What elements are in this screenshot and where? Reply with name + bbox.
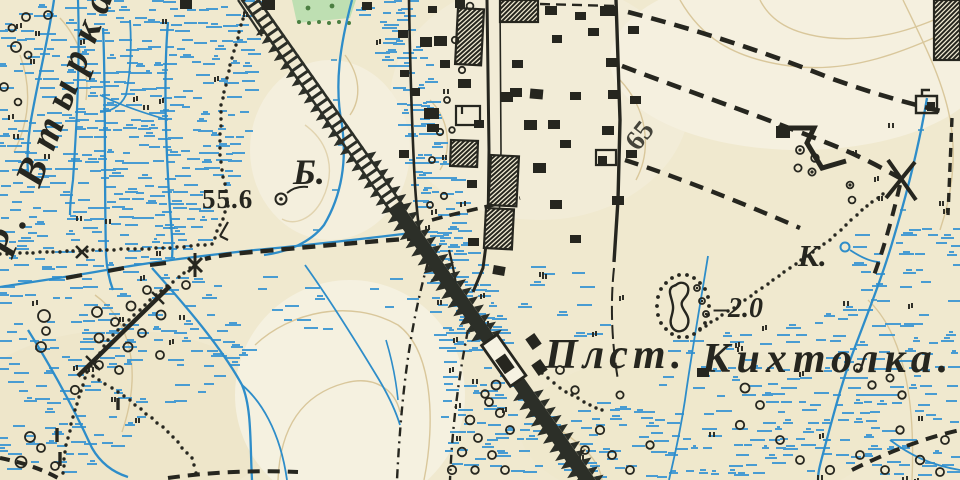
svg-text:Кихтолка.: Кихтолка. <box>701 336 954 382</box>
svg-text:Плст.: Плст. <box>544 332 687 378</box>
svg-text:Б.: Б. <box>292 152 325 192</box>
svg-text:–2.0: –2.0 <box>713 293 763 324</box>
svg-text:К.: К. <box>797 238 827 273</box>
svg-text:55.6: 55.6 <box>202 184 253 214</box>
